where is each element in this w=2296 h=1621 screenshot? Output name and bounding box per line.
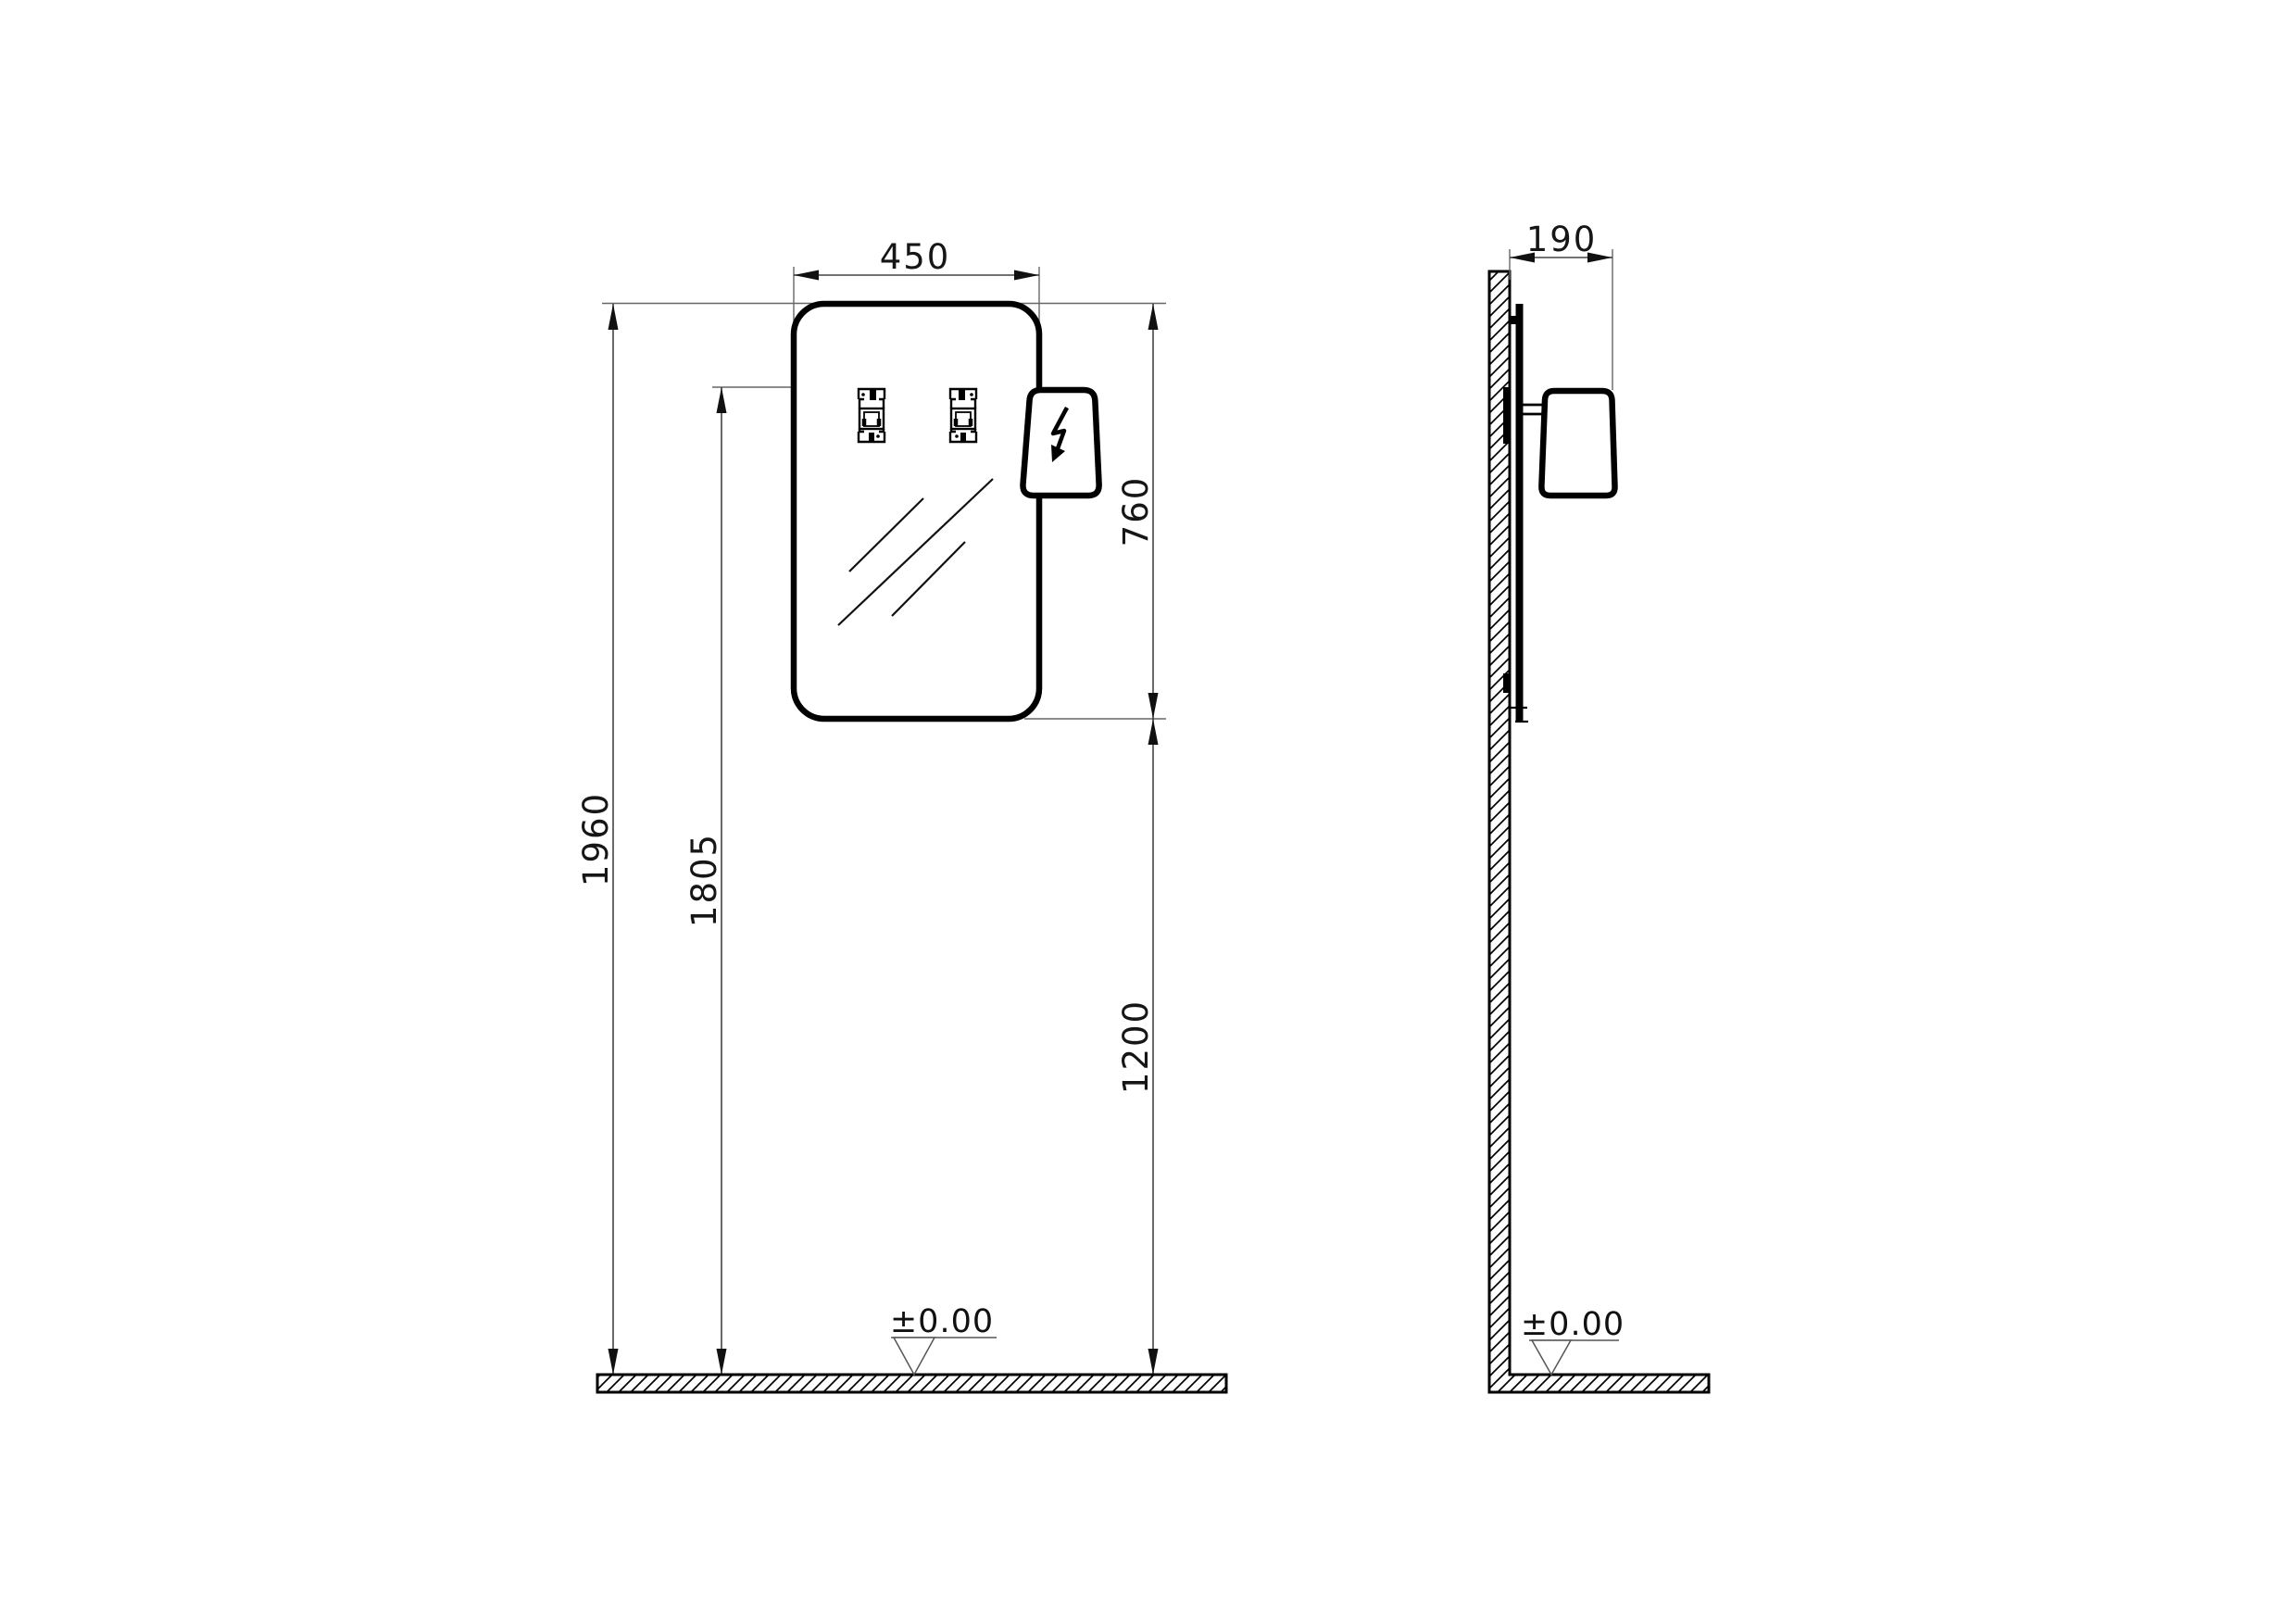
dim-overall-height-label: 1960 <box>576 792 616 886</box>
floor-front <box>597 1375 1226 1392</box>
lamp-shade-side <box>1541 391 1614 496</box>
dim-arrow-right-icon <box>1014 270 1039 281</box>
bracket-dot <box>876 434 880 438</box>
wall-bracket-side <box>1503 387 1511 444</box>
bracket-dot <box>970 393 973 396</box>
dim-width-label: 450 <box>880 237 951 277</box>
dim-bottom-height-label: 1200 <box>1116 999 1156 1094</box>
level-triangle-icon <box>894 1338 935 1375</box>
lamp-side <box>1524 391 1615 496</box>
floor-level-label: ±0.00 <box>890 1303 994 1340</box>
dim-arrow-left-icon <box>794 270 819 281</box>
dim-mirror-width: 450 <box>794 237 1039 281</box>
dim-overall-height: 1960 <box>576 304 619 1375</box>
mirror-top-hook <box>1510 316 1516 324</box>
level-triangle-icon <box>1532 1340 1571 1375</box>
wall-bracket-lower-side <box>1503 673 1511 693</box>
dim-hanger-height-label: 1805 <box>684 833 724 927</box>
bracket-pin <box>869 433 874 441</box>
bracket-dot <box>861 393 865 396</box>
bracket-pin <box>870 390 876 400</box>
dim-arrow-up-icon <box>717 387 727 413</box>
bracket-pin <box>959 390 965 400</box>
dim-arrow-down-icon <box>1148 1349 1159 1375</box>
dim-arrow-down-icon <box>717 1349 727 1375</box>
dim-arrow-up-icon <box>609 304 619 330</box>
lamp-front <box>1023 390 1098 496</box>
side-view: 190 ±0.00 <box>1489 220 1709 1392</box>
bracket-pin <box>960 433 966 441</box>
dim-arrow-up-icon <box>1148 719 1159 745</box>
dim-mirror-height: 760 <box>1116 304 1159 719</box>
dim-depth: 190 <box>1510 220 1612 390</box>
front-view: 450 170 1960 1805 760 <box>576 237 1226 1392</box>
level-marker-side: ±0.00 <box>1521 1306 1625 1375</box>
level-marker-front: ±0.00 <box>890 1303 997 1375</box>
technical-drawing-canvas: 450 170 1960 1805 760 <box>0 0 2296 1621</box>
drawing-svg: 450 170 1960 1805 760 <box>0 0 2296 1621</box>
dim-mirror-height-label: 760 <box>1116 476 1156 547</box>
mirror-side-panel <box>1516 304 1524 721</box>
dim-arrow-down-icon <box>609 1349 619 1375</box>
dim-bottom-height: 1200 <box>1116 719 1159 1375</box>
dim-hanger-height: 1805 <box>684 387 727 1375</box>
mirror-front-outline <box>794 304 1039 719</box>
dim-arrow-down-icon <box>1148 693 1159 719</box>
dim-depth-label: 190 <box>1526 220 1598 259</box>
bracket-dot <box>955 434 959 438</box>
dim-arrow-up-icon <box>1148 304 1159 330</box>
floor-level-label: ±0.00 <box>1521 1306 1625 1343</box>
